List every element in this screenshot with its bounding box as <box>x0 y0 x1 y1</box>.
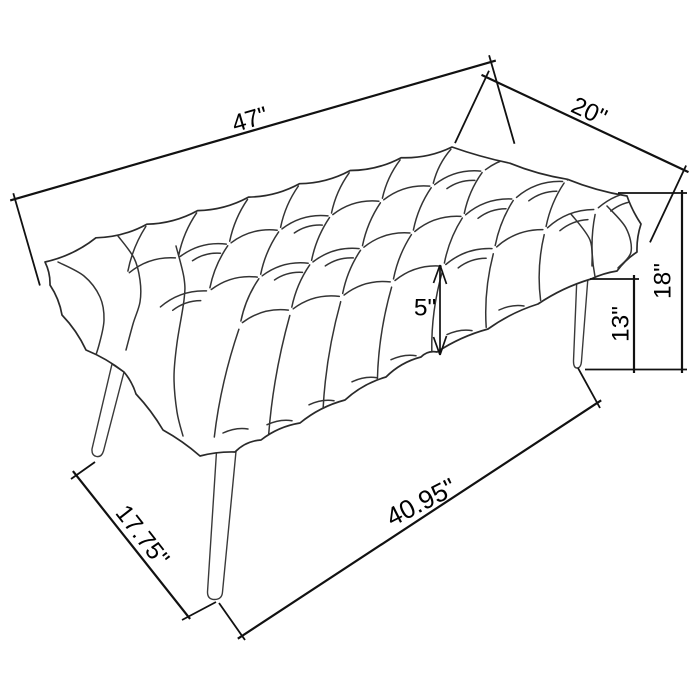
svg-text:13": 13" <box>608 306 635 342</box>
svg-text:5": 5" <box>414 295 436 322</box>
svg-text:18": 18" <box>650 263 677 299</box>
